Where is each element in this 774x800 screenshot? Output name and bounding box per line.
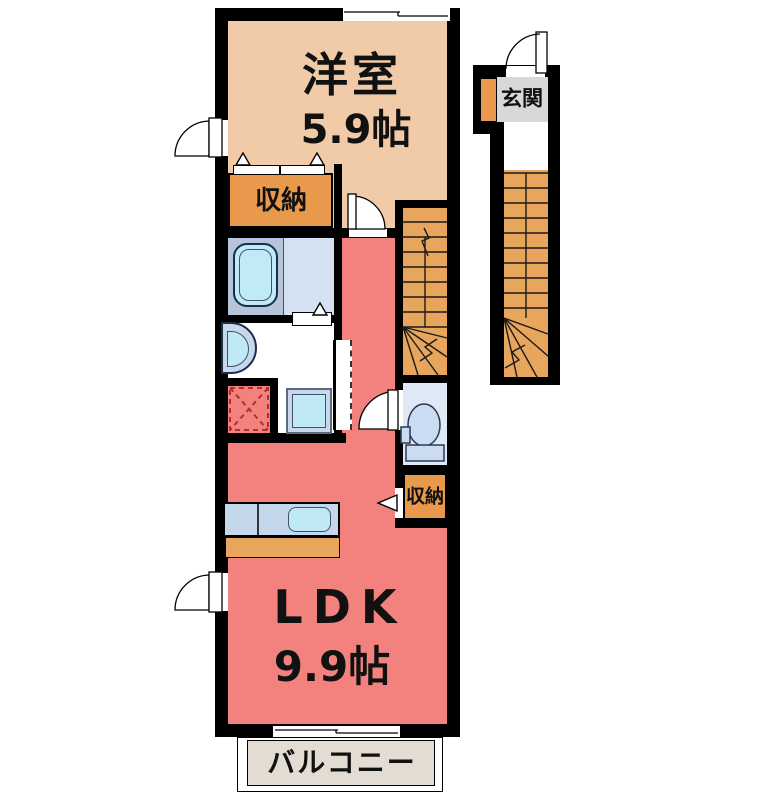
entrance-door-opening	[506, 66, 545, 77]
wall	[395, 375, 447, 383]
bathtub-inner-rim	[239, 249, 272, 301]
western-room-label: 洋室	[302, 52, 402, 98]
closet-door-divider	[279, 166, 281, 174]
bathroom-floor-dry-side	[283, 238, 334, 315]
closet-upper-label: 収納	[255, 188, 307, 214]
toilet-room-floor	[403, 383, 447, 465]
bathtub	[233, 243, 278, 307]
entrance-label: 玄関	[501, 89, 543, 110]
laundry-appliance-inner	[292, 394, 326, 428]
balcony-window	[273, 726, 400, 737]
kitchen-sink	[288, 507, 331, 532]
closet-lower-label: 収納	[406, 488, 444, 507]
western-room-size: 5.9帖	[301, 110, 412, 150]
left-wall-window-opening	[215, 573, 228, 611]
wall	[395, 520, 447, 528]
wall	[395, 465, 447, 473]
wall	[395, 200, 403, 528]
kitchen-cabinet	[225, 537, 340, 558]
washroom-sliding-door	[333, 340, 352, 430]
toilet-door-opening	[395, 390, 403, 430]
laundry-appliance	[286, 388, 332, 434]
bathroom-folding-door	[292, 312, 332, 326]
top-window	[343, 8, 450, 21]
wall	[228, 378, 278, 386]
washbasin-bowl	[227, 331, 249, 367]
balcony-label: バルコニー	[267, 749, 416, 777]
ldk-label: LDK	[273, 584, 406, 630]
shoe-cabinet	[480, 78, 497, 122]
ldk-size: 9.9帖	[274, 646, 390, 688]
exterior-staircase	[504, 170, 548, 377]
western-room-door-threshold	[348, 228, 388, 238]
entrance-landing	[504, 122, 548, 170]
wall	[228, 433, 346, 443]
interior-staircase	[403, 208, 447, 375]
wall	[395, 200, 447, 208]
left-wall-door-opening	[215, 120, 228, 156]
floor-plan: 洋室 5.9帖 収納 LDK 9.9帖 収納 玄関 バルコニー	[0, 0, 774, 800]
wall	[270, 386, 278, 433]
closet-sliding-door	[233, 165, 325, 175]
closet-lower-opening	[395, 488, 403, 518]
wall	[334, 164, 342, 340]
